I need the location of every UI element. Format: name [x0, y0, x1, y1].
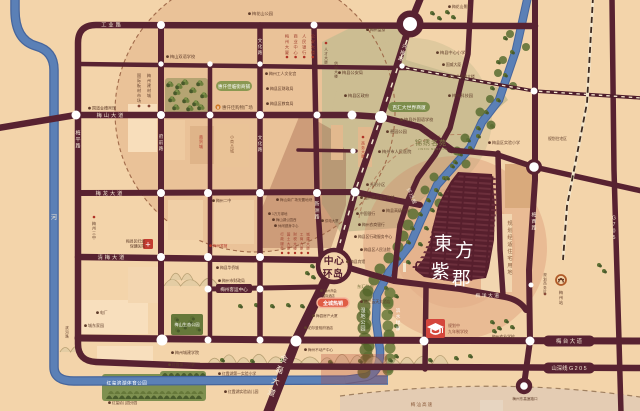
svg-text:惠仟佳购物广场: 惠仟佳购物广场	[222, 104, 253, 111]
svg-text:梅 台 大 道: 梅 台 大 道	[556, 337, 583, 345]
svg-text:梅州大厦: 梅州大厦	[285, 33, 289, 56]
svg-text:红霞湖实验幼儿园: 红霞湖实验幼儿园	[228, 389, 259, 394]
svg-text:梅山生态公园: 梅山生态公园	[174, 321, 199, 328]
svg-text:河: 河	[51, 214, 57, 222]
svg-text:梅县房产大厦: 梅县房产大厦	[316, 313, 338, 318]
svg-text:国道金穗宾馆: 国道金穗宾馆	[92, 105, 116, 111]
svg-text:梅州监狱: 梅州监狱	[370, 27, 385, 32]
svg-text:国际板材市场: 国际板材市场	[137, 72, 141, 103]
svg-text:中国银行: 中国银行	[360, 211, 375, 216]
svg-text:梅县外国语学校: 梅县外国语学校	[404, 116, 434, 123]
svg-text:清梅大道: 清梅大道	[98, 253, 127, 261]
svg-text:国威大厦: 国威大厦	[446, 62, 461, 67]
svg-text:财税大楼: 财税大楼	[293, 232, 297, 251]
svg-text:梅州客运中心: 梅州客运中心	[220, 286, 248, 293]
svg-text:梅州站: 梅州站	[559, 289, 563, 306]
svg-text:梅县区妇幼: 梅县区妇幼	[126, 239, 145, 244]
svg-text:光明小区: 光明小区	[370, 182, 385, 187]
svg-text:供电大楼: 供电大楼	[334, 60, 338, 78]
svg-text:电厂: 电厂	[100, 310, 108, 315]
svg-text:梅山双语学校: 梅山双语学校	[170, 53, 196, 60]
svg-text:梅州科技园: 梅州科技园	[452, 92, 473, 99]
svg-text:梅州市人民医院: 梅州市人民医院	[382, 148, 412, 155]
svg-text:梅县宾馆: 梅县宾馆	[350, 259, 365, 264]
svg-text:湿地公园: 湿地公园	[360, 307, 365, 332]
svg-text:红玺滨湖体育公园: 红玺滨湖体育公园	[107, 380, 148, 387]
svg-text:农业发展大楼: 农业发展大楼	[452, 74, 475, 79]
svg-text:城建大厦: 城建大厦	[306, 232, 310, 251]
svg-text:滨水绿廊: 滨水绿廊	[396, 307, 401, 332]
svg-text:国土大厦: 国土大厦	[287, 232, 291, 251]
svg-text:文化路: 文化路	[258, 134, 263, 153]
svg-text:梅县区实验小学: 梅县区实验小学	[492, 139, 520, 145]
svg-text:全城热销: 全城热销	[322, 300, 343, 307]
svg-text:人才大厦: 人才大厦	[324, 46, 328, 64]
svg-text:郡: 郡	[452, 268, 471, 289]
svg-text:国际酒店: 国际酒店	[322, 293, 335, 298]
svg-text:惠仟佳临街商铺: 惠仟佳临街商铺	[218, 83, 251, 90]
svg-text:憩园公园: 憩园公园	[390, 128, 407, 135]
svg-text:+: +	[145, 240, 150, 250]
svg-text:红玺幼儿园分园: 红玺幼儿园分园	[112, 400, 138, 405]
svg-text:新洲路: 新洲路	[314, 201, 319, 221]
svg-text:梅州农业学校: 梅州农业学校	[492, 334, 515, 339]
svg-text:梅县中心小学: 梅县中心小学	[440, 49, 465, 56]
svg-text:锦绣名苑: 锦绣名苑	[415, 138, 447, 147]
svg-text:供电大厦: 供电大厦	[325, 218, 339, 223]
svg-text:梅州宾馆: 梅州宾馆	[213, 243, 228, 248]
svg-text:梅县公安局: 梅县公安局	[342, 69, 363, 76]
svg-text:梅汕高速: 梅汕高速	[411, 401, 433, 408]
svg-text:红霞湖第一实验小学: 红霞湖第一实验小学	[222, 371, 256, 376]
svg-text:梅西路: 梅西路	[531, 212, 536, 232]
svg-text:行政服务: 行政服务	[280, 232, 284, 251]
svg-text:温州城品真皮商城: 温州城品真皮商城	[364, 195, 395, 200]
svg-text:小商品城: 小商品城	[230, 135, 234, 154]
svg-text:紫: 紫	[431, 261, 450, 282]
svg-text:梅州农商银行: 梅州农商银行	[362, 222, 385, 227]
svg-text:山深线 G 2 0 5: 山深线 G 2 0 5	[551, 364, 586, 372]
svg-text:梅州工人文化宫: 梅州工人文化宫	[269, 71, 296, 76]
svg-text:工业路: 工业路	[101, 21, 123, 29]
svg-text:梅山湖公园西: 梅山湖公园西	[276, 217, 297, 222]
svg-text:商贸城: 商贸城	[199, 135, 203, 149]
svg-text:梅花山公园: 梅花山公园	[252, 10, 273, 17]
svg-text:梅县区财政局: 梅县区财政局	[270, 86, 293, 91]
svg-text:JINXIU MANSION: JINXIU MANSION	[418, 147, 447, 151]
svg-text:红霞第二小学: 红霞第二小学	[172, 362, 195, 367]
svg-text:梅山南广场安置地块: 梅山南广场安置地块	[280, 197, 313, 202]
svg-text:梅洋大道: 梅洋大道	[475, 292, 500, 299]
svg-text:方: 方	[455, 240, 474, 261]
svg-text:保健医院: 保健医院	[130, 244, 145, 249]
svg-text:规划中: 规划中	[448, 322, 460, 328]
svg-text:梅州二中: 梅州二中	[216, 198, 231, 203]
svg-text:梅花山景区: 梅花山景区	[452, 4, 471, 9]
svg-text:规划经适住宅用地: 规划经适住宅用地	[507, 219, 512, 276]
svg-text:梅州东高速路口: 梅州东高速路口	[512, 396, 538, 401]
svg-text:梅州建材城: 梅州建材城	[147, 72, 151, 98]
svg-text:东汇华府: 东汇华府	[357, 283, 374, 290]
svg-text:城东家园: 城东家园	[88, 322, 104, 328]
svg-text:梅县区人民法院: 梅县区人民法院	[364, 247, 391, 252]
svg-text:梅州不动产中心: 梅州不动产中心	[308, 347, 334, 352]
svg-text:梅县高级中学: 梅县高级中学	[386, 207, 410, 213]
svg-text:梅县区政府: 梅县区政府	[348, 92, 369, 99]
svg-text:格兰云天大酒店: 格兰云天大酒店	[364, 299, 391, 304]
svg-text:九年制学校: 九年制学校	[448, 328, 468, 334]
svg-text:规划住宅区: 规划住宅区	[548, 136, 567, 141]
svg-text:文化路: 文化路	[258, 37, 263, 56]
svg-text:休闲健身中心: 休闲健身中心	[278, 223, 299, 228]
svg-text:梅州市财政局: 梅州市财政局	[222, 278, 245, 283]
svg-text:梅平路: 梅平路	[75, 130, 80, 150]
svg-text:商务大厦: 商务大厦	[361, 140, 365, 158]
svg-text:工商大厦: 工商大厦	[300, 233, 304, 251]
svg-text:梅县区教育局: 梅县区教育局	[270, 101, 293, 106]
svg-text:铂尔曼相府酒店: 铂尔曼相府酒店	[308, 325, 334, 330]
svg-text:梅龙大道: 梅龙大道	[96, 189, 125, 197]
svg-text:梅州城建学院: 梅州城建学院	[175, 349, 199, 355]
svg-text:百汇大世界商厦: 百汇大世界商厦	[392, 104, 426, 111]
svg-text:环岛: 环岛	[323, 267, 344, 280]
svg-text:梅州商会: 梅州商会	[324, 288, 338, 293]
svg-text:1万方绿地: 1万方绿地	[272, 211, 288, 216]
svg-text:梅县区行政服务中心: 梅县区行政服务中心	[358, 234, 392, 239]
svg-text:梅州三中: 梅州三中	[92, 220, 96, 240]
svg-text:府前路: 府前路	[159, 133, 164, 152]
svg-text:東: 東	[434, 233, 453, 254]
svg-text:中心: 中心	[324, 254, 345, 267]
svg-text:梅县华侨城: 梅县华侨城	[220, 265, 239, 270]
svg-text:梅山大道: 梅山大道	[97, 111, 126, 119]
